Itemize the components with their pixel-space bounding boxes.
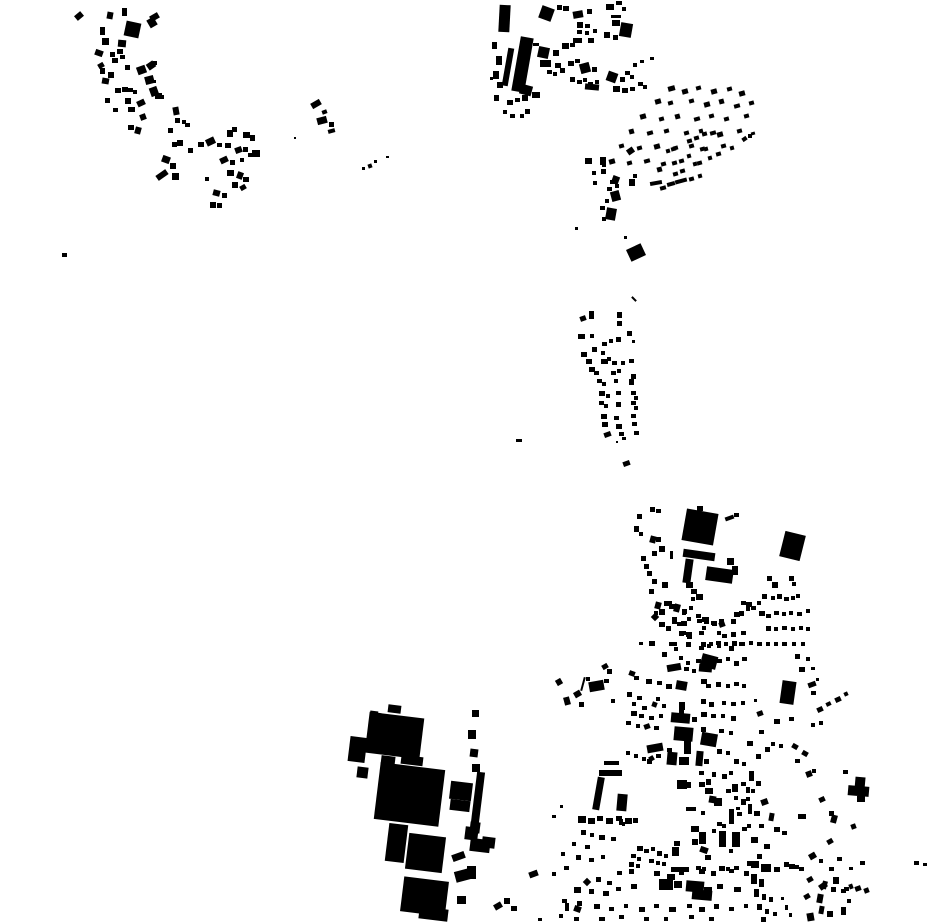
- building-footprint: [726, 684, 730, 688]
- building-footprint: [227, 170, 234, 176]
- building-footprint: [577, 901, 582, 906]
- building-footprint: [811, 667, 815, 670]
- building-footprint: [348, 736, 368, 763]
- building-footprint: [586, 677, 590, 681]
- building-footprint: [637, 145, 643, 150]
- building-footprint: [673, 145, 679, 150]
- building-footprint: [761, 917, 766, 922]
- building-footprint: [507, 100, 513, 105]
- building-footprint: [705, 566, 734, 584]
- building-footprint: [627, 160, 633, 165]
- building-footprint: [105, 98, 110, 103]
- building-footprint: [577, 80, 582, 84]
- building-footprint: [117, 49, 123, 54]
- building-footprint: [612, 361, 617, 365]
- building-footprint: [573, 905, 582, 913]
- building-footprint: [709, 113, 715, 118]
- building-footprint: [806, 627, 810, 631]
- building-footprint: [601, 414, 607, 419]
- building-footprint: [627, 331, 632, 336]
- building-footprint: [806, 876, 814, 883]
- building-footprint: [801, 750, 809, 757]
- building-footprint: [225, 143, 231, 148]
- building-footprint: [537, 46, 550, 59]
- building-footprint: [774, 827, 780, 832]
- building-footprint: [604, 761, 619, 765]
- building-footprint: [657, 681, 662, 685]
- building-footprint: [660, 185, 667, 190]
- building-footprint: [825, 701, 831, 707]
- building-footprint: [118, 40, 127, 48]
- building-footprint: [659, 622, 665, 627]
- building-footprint: [662, 652, 667, 657]
- building-footprint: [692, 839, 698, 845]
- building-footprint: [653, 143, 660, 149]
- building-footprint: [172, 142, 177, 147]
- building-footprint: [664, 854, 668, 858]
- building-footprint: [667, 85, 675, 92]
- building-footprint: [633, 63, 637, 67]
- building-footprint: [729, 809, 734, 824]
- building-footprint: [168, 128, 173, 133]
- building-footprint: [751, 837, 758, 843]
- building-footprint: [718, 621, 725, 628]
- building-footprint: [784, 597, 789, 601]
- building-footprint: [239, 184, 247, 191]
- building-footprint: [385, 823, 408, 863]
- building-footprint: [470, 749, 479, 758]
- building-footprint: [806, 657, 810, 661]
- building-footprint: [616, 1, 622, 5]
- building-footprint: [729, 646, 734, 651]
- building-footprint: [603, 431, 611, 438]
- building-footprint: [644, 564, 649, 569]
- building-footprint: [759, 611, 765, 616]
- building-footprint: [234, 146, 243, 154]
- building-footprint: [710, 130, 717, 135]
- building-footprint: [647, 571, 652, 576]
- building-footprint: [597, 816, 603, 821]
- building-footprint: [706, 779, 711, 785]
- building-footprint: [243, 177, 249, 182]
- building-footprint: [631, 401, 636, 405]
- building-footprint: [675, 178, 688, 185]
- building-footprint: [634, 406, 638, 410]
- building-footprint: [504, 898, 510, 904]
- building-footprint: [705, 855, 711, 860]
- building-footprint: [732, 784, 738, 792]
- building-footprint: [741, 782, 746, 786]
- building-footprint: [699, 646, 704, 650]
- building-footprint: [624, 236, 627, 239]
- building-footprint: [388, 704, 402, 714]
- building-footprint: [679, 631, 684, 636]
- building-footprint: [520, 114, 524, 118]
- building-footprint: [643, 85, 647, 89]
- building-footprint: [702, 617, 709, 622]
- building-footprint: [472, 710, 479, 717]
- building-footprint: [746, 607, 750, 611]
- building-footprint: [605, 199, 609, 203]
- building-footprint: [808, 852, 817, 861]
- building-footprint: [766, 626, 771, 631]
- building-footprint: [646, 743, 663, 754]
- building-footprint: [721, 714, 725, 718]
- building-footprint: [664, 128, 670, 133]
- building-footprint: [738, 90, 745, 96]
- building-footprint: [490, 77, 493, 80]
- building-footprint: [243, 132, 250, 138]
- building-footprint: [659, 714, 663, 718]
- building-footprint: [759, 824, 764, 828]
- building-footprint: [672, 642, 677, 646]
- building-footprint: [605, 207, 617, 221]
- building-footprint: [691, 826, 699, 832]
- building-footprint: [612, 20, 620, 26]
- building-footprint: [647, 130, 654, 135]
- building-footprint: [731, 632, 736, 637]
- building-footprint: [557, 5, 562, 10]
- building-footprint: [552, 815, 556, 818]
- building-footprint: [639, 714, 644, 718]
- building-footprint: [682, 609, 687, 614]
- building-footprint: [684, 741, 691, 754]
- building-footprint: [714, 904, 719, 909]
- building-footprint: [217, 203, 222, 208]
- building-footprint: [493, 71, 499, 79]
- building-footprint: [602, 217, 606, 221]
- building-footprint: [754, 699, 757, 702]
- building-footprint: [711, 621, 716, 625]
- building-footprint: [449, 799, 470, 812]
- building-footprint: [563, 696, 571, 705]
- building-footprint: [560, 805, 563, 808]
- building-footprint: [522, 95, 528, 101]
- building-footprint: [833, 877, 839, 884]
- building-footprint: [386, 156, 389, 158]
- building-footprint: [749, 100, 755, 105]
- building-footprint: [644, 849, 649, 853]
- building-footprint: [644, 917, 649, 921]
- building-footprint: [555, 678, 563, 686]
- building-footprint: [652, 551, 657, 556]
- building-footprint: [806, 912, 814, 921]
- building-footprint: [629, 869, 634, 874]
- building-footprint: [803, 893, 811, 900]
- building-footprint: [656, 166, 662, 172]
- building-footprint: [765, 747, 770, 752]
- building-footprint: [589, 311, 594, 319]
- building-footprint: [607, 187, 612, 191]
- building-footprint: [746, 787, 750, 793]
- building-footprint: [650, 180, 663, 186]
- building-footprint: [774, 867, 780, 872]
- building-footprint: [818, 906, 824, 915]
- building-footprint: [540, 60, 551, 67]
- building-footprint: [769, 897, 773, 902]
- building-footprint: [727, 86, 733, 91]
- building-footprint: [696, 594, 703, 600]
- building-footprint: [532, 92, 540, 98]
- building-footprint: [570, 77, 575, 82]
- building-footprint: [619, 432, 624, 436]
- building-footprint: [562, 43, 569, 49]
- building-footprint: [232, 182, 238, 188]
- building-footprint: [689, 606, 693, 610]
- building-footprint: [468, 730, 476, 739]
- building-footprint: [604, 679, 609, 683]
- building-footprint: [616, 887, 621, 891]
- building-footprint: [533, 43, 539, 46]
- building-footprint: [767, 576, 772, 581]
- building-footprint: [726, 789, 731, 793]
- building-footprint: [781, 897, 784, 900]
- building-footprint: [611, 699, 615, 703]
- building-footprint: [629, 179, 635, 186]
- building-footprint: [754, 811, 760, 816]
- building-footprint: [593, 29, 597, 33]
- building-footprint: [731, 702, 736, 706]
- building-footprint: [777, 594, 782, 599]
- building-footprint: [175, 118, 180, 123]
- building-footprint: [768, 813, 774, 822]
- building-footprint: [779, 744, 783, 748]
- building-footprint: [630, 75, 634, 79]
- building-footprint: [139, 113, 147, 121]
- building-footprint: [642, 757, 646, 761]
- building-footprint: [699, 846, 709, 854]
- building-footprint: [136, 65, 147, 76]
- building-footprint: [629, 359, 634, 363]
- building-footprint: [771, 742, 775, 746]
- building-footprint: [637, 696, 642, 700]
- building-footprint: [575, 59, 580, 63]
- building-footprint: [600, 206, 605, 210]
- building-footprint: [356, 766, 368, 778]
- building-footprint: [850, 823, 856, 829]
- building-footprint: [583, 878, 591, 886]
- building-footprint: [681, 88, 688, 94]
- building-footprint: [719, 831, 726, 847]
- building-footprint: [170, 163, 176, 169]
- building-footprint: [639, 907, 645, 912]
- building-footprint: [736, 807, 740, 810]
- building-footprint: [834, 696, 842, 703]
- building-footprint: [212, 189, 220, 197]
- building-footprint: [656, 697, 660, 701]
- building-footprint: [709, 702, 714, 707]
- building-footprint: [726, 657, 730, 661]
- building-footprint: [592, 171, 596, 175]
- building-footprint: [819, 721, 823, 725]
- building-footprint: [590, 334, 594, 338]
- building-footprint: [811, 691, 816, 695]
- building-footprint: [553, 50, 559, 56]
- building-footprint: [172, 107, 179, 116]
- building-footprint: [128, 107, 135, 112]
- building-footprint: [722, 701, 726, 705]
- building-footprint: [608, 158, 615, 164]
- building-footprint: [854, 885, 861, 892]
- building-footprint: [666, 684, 672, 689]
- building-footprint: [744, 904, 748, 908]
- building-footprint: [722, 774, 727, 779]
- building-footprint: [601, 351, 605, 355]
- building-footprint: [717, 631, 721, 635]
- building-footprint: [791, 596, 795, 600]
- building-footprint: [712, 772, 716, 777]
- building-footprint: [766, 642, 770, 646]
- building-footprint: [603, 891, 609, 896]
- building-footprint: [115, 88, 121, 93]
- building-footprint: [626, 147, 635, 156]
- building-footprint: [779, 680, 796, 705]
- building-footprint: [632, 702, 636, 706]
- building-footprint: [680, 168, 686, 173]
- building-footprint: [701, 811, 705, 815]
- building-footprint: [722, 634, 727, 638]
- building-footprint: [718, 98, 724, 104]
- building-footprint: [751, 606, 756, 610]
- building-footprint: [617, 369, 621, 373]
- building-footprint: [673, 171, 679, 176]
- building-footprint: [492, 42, 497, 49]
- building-footprint: [586, 359, 592, 364]
- building-footprint: [602, 342, 607, 346]
- building-footprint: [592, 67, 597, 72]
- building-footprint: [574, 887, 581, 893]
- building-footprint: [606, 818, 613, 824]
- building-footprint: [222, 193, 227, 198]
- building-footprint: [673, 726, 693, 742]
- building-footprint: [626, 243, 646, 262]
- building-footprint: [616, 424, 622, 429]
- map-canvas: [0, 0, 930, 924]
- building-footprint: [497, 82, 503, 88]
- building-footprint: [606, 394, 610, 398]
- building-footprint: [583, 78, 587, 82]
- building-footprint: [734, 866, 739, 870]
- building-footprint: [847, 899, 851, 903]
- building-footprint: [562, 899, 567, 903]
- building-footprint: [588, 38, 594, 43]
- building-footprint: [606, 71, 619, 84]
- building-footprint: [153, 61, 157, 65]
- building-footprint: [774, 611, 779, 615]
- building-footprint: [503, 110, 507, 114]
- building-footprint: [617, 871, 622, 875]
- building-footprint: [639, 113, 646, 119]
- building-footprint: [717, 884, 723, 889]
- building-footprint: [606, 4, 614, 10]
- building-footprint: [772, 582, 778, 588]
- building-footprint: [329, 122, 334, 127]
- building-footprint: [662, 862, 666, 866]
- building-footprint: [831, 887, 836, 892]
- building-footprint: [108, 72, 114, 78]
- building-footprint: [631, 391, 636, 395]
- building-footprint: [577, 22, 583, 28]
- building-footprint: [637, 846, 643, 851]
- building-footprint: [667, 748, 672, 752]
- building-footprint: [747, 741, 753, 746]
- building-footprint: [594, 904, 600, 909]
- building-footprint: [849, 867, 853, 870]
- building-footprint: [670, 551, 673, 559]
- building-footprint: [789, 913, 792, 917]
- building-footprint: [580, 677, 586, 691]
- building-footprint: [684, 667, 689, 671]
- building-footprint: [217, 143, 222, 147]
- building-footprint: [634, 676, 639, 680]
- building-footprint: [711, 871, 716, 876]
- building-footprint: [579, 62, 591, 74]
- building-footprint: [631, 711, 637, 716]
- building-footprint: [709, 642, 713, 646]
- building-footprint: [757, 601, 761, 605]
- building-footprint: [510, 114, 515, 118]
- building-footprint: [585, 24, 590, 28]
- building-footprint: [601, 855, 605, 859]
- building-footprint: [795, 759, 800, 763]
- building-footprint: [734, 103, 741, 108]
- building-footprint: [701, 699, 706, 704]
- building-footprint: [590, 833, 594, 837]
- building-footprint: [734, 682, 739, 686]
- building-footprint: [702, 131, 708, 136]
- building-footprint: [177, 140, 183, 146]
- building-footprint: [633, 174, 637, 178]
- building-footprint: [172, 173, 179, 180]
- building-footprint: [615, 184, 619, 188]
- building-footprint: [594, 371, 599, 375]
- building-footprint: [672, 160, 678, 165]
- building-footprint: [651, 701, 657, 707]
- building-footprint: [616, 402, 621, 407]
- building-footprint: [727, 558, 734, 565]
- building-footprint: [631, 854, 636, 858]
- building-footprint: [816, 706, 824, 713]
- building-footprint: [797, 612, 802, 616]
- building-footprint: [806, 609, 810, 613]
- building-footprint: [122, 8, 127, 16]
- building-footprint: [611, 837, 616, 841]
- building-footprint: [198, 142, 204, 147]
- building-footprint: [672, 847, 679, 856]
- building-footprint: [742, 684, 746, 688]
- building-footprint: [574, 917, 579, 921]
- building-footprint: [629, 862, 634, 867]
- building-footprint: [649, 589, 654, 594]
- building-footprint: [689, 176, 695, 181]
- building-footprint: [547, 70, 552, 74]
- building-footprint: [807, 681, 816, 688]
- building-footprint: [757, 854, 762, 859]
- building-footprint: [708, 156, 713, 161]
- building-footprint: [659, 116, 665, 121]
- building-footprint: [581, 352, 587, 357]
- building-footprint: [561, 852, 565, 856]
- building-footprint: [654, 904, 659, 908]
- building-footprint: [599, 770, 622, 776]
- building-footprint: [792, 582, 796, 586]
- building-footprint: [716, 131, 723, 137]
- building-footprint: [774, 642, 778, 646]
- building-footprint: [841, 907, 846, 915]
- building-footprint: [724, 116, 730, 121]
- building-footprint: [599, 835, 605, 840]
- building-footprint: [699, 771, 704, 775]
